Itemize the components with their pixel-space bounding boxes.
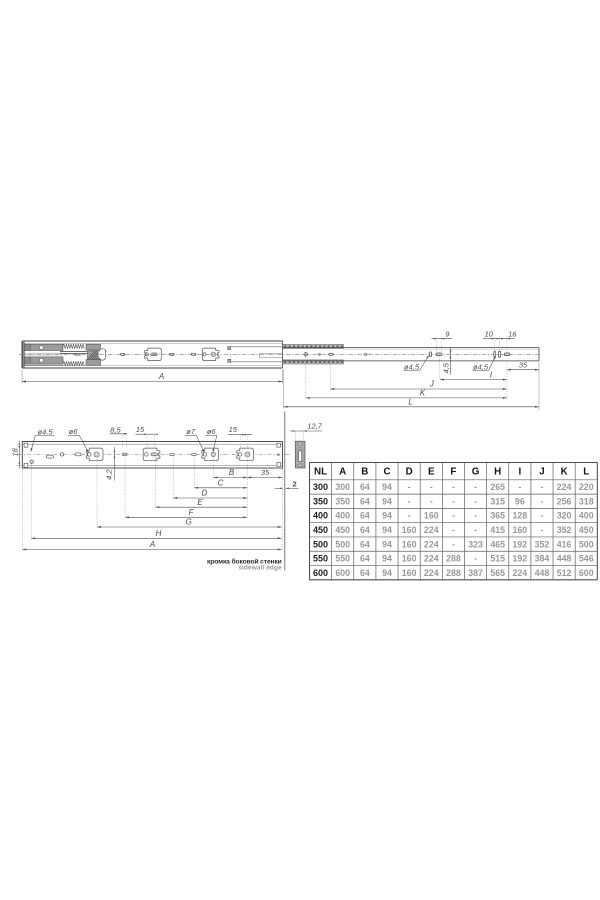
svg-text:-: -: [452, 511, 455, 521]
svg-text:B: B: [229, 468, 235, 477]
svg-text:64: 64: [360, 568, 370, 578]
svg-text:224: 224: [424, 539, 439, 549]
svg-text:-: -: [541, 496, 544, 506]
svg-text:F: F: [450, 467, 456, 478]
svg-text:64: 64: [360, 496, 370, 506]
svg-text:-: -: [408, 511, 411, 521]
svg-text:224: 224: [424, 568, 439, 578]
svg-text:-: -: [408, 496, 411, 506]
svg-text:160: 160: [402, 568, 417, 578]
svg-text:387: 387: [468, 568, 483, 578]
svg-text:160: 160: [402, 554, 417, 564]
svg-text:J: J: [539, 467, 544, 478]
svg-text:96: 96: [515, 496, 525, 506]
svg-text:400: 400: [335, 511, 350, 521]
svg-text:-: -: [474, 554, 477, 564]
svg-text:64: 64: [360, 539, 370, 549]
svg-text:94: 94: [382, 554, 392, 564]
svg-text:546: 546: [579, 554, 594, 564]
svg-text:224: 224: [424, 525, 439, 535]
svg-text:515: 515: [490, 554, 505, 564]
svg-text:G: G: [472, 467, 480, 478]
svg-text:352: 352: [557, 525, 572, 535]
svg-text:-: -: [452, 539, 455, 549]
svg-text:-: -: [541, 482, 544, 492]
svg-text:ø6: ø6: [207, 427, 217, 436]
svg-text:35: 35: [261, 468, 270, 477]
svg-text:315: 315: [490, 496, 505, 506]
svg-text:18: 18: [11, 447, 20, 456]
svg-text:4,5: 4,5: [442, 362, 451, 373]
svg-text:350: 350: [335, 496, 350, 506]
svg-text:600: 600: [579, 568, 594, 578]
svg-text:-: -: [474, 482, 477, 492]
svg-text:365: 365: [490, 511, 505, 521]
svg-text:I: I: [518, 467, 521, 478]
svg-text:160: 160: [512, 525, 527, 535]
svg-text:ø6: ø6: [69, 427, 79, 436]
svg-text:160: 160: [402, 539, 417, 549]
svg-text:320: 320: [557, 511, 572, 521]
svg-text:sidewall edge: sidewall edge: [238, 564, 282, 571]
svg-text:448: 448: [557, 554, 572, 564]
svg-text:500: 500: [335, 539, 350, 549]
svg-text:160: 160: [424, 511, 439, 521]
svg-text:224: 224: [512, 568, 527, 578]
svg-text:128: 128: [512, 511, 527, 521]
svg-text:10: 10: [485, 329, 494, 338]
svg-text:318: 318: [579, 496, 594, 506]
svg-text:450: 450: [313, 525, 328, 535]
svg-text:-: -: [474, 525, 477, 535]
svg-text:-: -: [474, 496, 477, 506]
svg-text:265: 265: [490, 482, 505, 492]
svg-text:64: 64: [360, 482, 370, 492]
svg-text:ø4,5: ø4,5: [404, 362, 420, 371]
svg-text:-: -: [452, 496, 455, 506]
svg-text:352: 352: [535, 539, 550, 549]
svg-text:192: 192: [512, 539, 527, 549]
svg-text:2: 2: [293, 480, 297, 489]
svg-text:512: 512: [557, 568, 572, 578]
svg-text:-: -: [408, 482, 411, 492]
svg-text:E: E: [428, 467, 435, 478]
svg-text:448: 448: [535, 568, 550, 578]
svg-text:D: D: [202, 489, 208, 498]
svg-text:565: 565: [490, 568, 505, 578]
svg-text:300: 300: [313, 482, 328, 492]
svg-text:500: 500: [579, 539, 594, 549]
svg-text:B: B: [361, 467, 368, 478]
svg-text:416: 416: [557, 539, 572, 549]
svg-text:C: C: [218, 478, 224, 487]
svg-text:288: 288: [446, 554, 461, 564]
svg-text:400: 400: [313, 511, 328, 521]
svg-text:15: 15: [136, 425, 145, 434]
svg-text:8,5: 8,5: [110, 425, 121, 434]
svg-text:220: 220: [579, 482, 594, 492]
svg-text:600: 600: [335, 568, 350, 578]
svg-text:ø7: ø7: [186, 427, 196, 436]
svg-text:94: 94: [382, 511, 392, 521]
svg-text:12,7: 12,7: [307, 422, 322, 431]
svg-text:-: -: [541, 525, 544, 535]
svg-text:L: L: [408, 398, 412, 407]
svg-text:4,2: 4,2: [105, 469, 114, 480]
svg-text:15: 15: [229, 425, 238, 434]
svg-text:K: K: [561, 467, 568, 478]
svg-text:160: 160: [402, 525, 417, 535]
svg-text:H: H: [494, 467, 501, 478]
svg-text:64: 64: [360, 554, 370, 564]
svg-text:A: A: [158, 372, 164, 381]
svg-text:415: 415: [490, 525, 505, 535]
svg-text:H: H: [156, 529, 162, 538]
svg-text:450: 450: [579, 525, 594, 535]
svg-text:256: 256: [557, 496, 572, 506]
svg-text:-: -: [430, 482, 433, 492]
svg-text:16: 16: [508, 329, 517, 338]
svg-text:94: 94: [382, 525, 392, 535]
svg-text:-: -: [518, 482, 521, 492]
svg-text:ø4,5: ø4,5: [473, 362, 489, 371]
svg-text:35: 35: [519, 360, 528, 369]
svg-text:L: L: [583, 467, 589, 478]
svg-text:-: -: [474, 511, 477, 521]
svg-text:64: 64: [360, 525, 370, 535]
svg-text:323: 323: [468, 539, 483, 549]
svg-text:384: 384: [535, 554, 550, 564]
svg-text:300: 300: [335, 482, 350, 492]
svg-text:94: 94: [382, 496, 392, 506]
svg-text:465: 465: [490, 539, 505, 549]
svg-text:A: A: [149, 540, 155, 549]
svg-text:192: 192: [512, 554, 527, 564]
svg-text:94: 94: [382, 539, 392, 549]
svg-text:600: 600: [313, 568, 328, 578]
svg-text:A: A: [339, 467, 346, 478]
svg-text:450: 450: [335, 525, 350, 535]
svg-text:NL: NL: [314, 467, 327, 478]
svg-text:D: D: [406, 467, 413, 478]
svg-text:-: -: [452, 482, 455, 492]
svg-text:G: G: [186, 518, 192, 527]
svg-text:94: 94: [382, 482, 392, 492]
svg-text:C: C: [383, 467, 390, 478]
svg-text:64: 64: [360, 511, 370, 521]
svg-text:224: 224: [424, 554, 439, 564]
svg-text:-: -: [541, 511, 544, 521]
svg-text:350: 350: [313, 496, 328, 506]
svg-text:224: 224: [557, 482, 572, 492]
svg-text:E: E: [197, 498, 203, 507]
svg-text:-: -: [452, 525, 455, 535]
svg-text:500: 500: [313, 539, 328, 549]
svg-text:550: 550: [335, 554, 350, 564]
svg-text:400: 400: [579, 511, 594, 521]
svg-text:94: 94: [382, 568, 392, 578]
svg-text:-: -: [430, 496, 433, 506]
svg-text:288: 288: [446, 568, 461, 578]
svg-text:ø4,5: ø4,5: [37, 427, 53, 436]
svg-text:K: K: [420, 389, 426, 398]
svg-text:550: 550: [313, 554, 328, 564]
